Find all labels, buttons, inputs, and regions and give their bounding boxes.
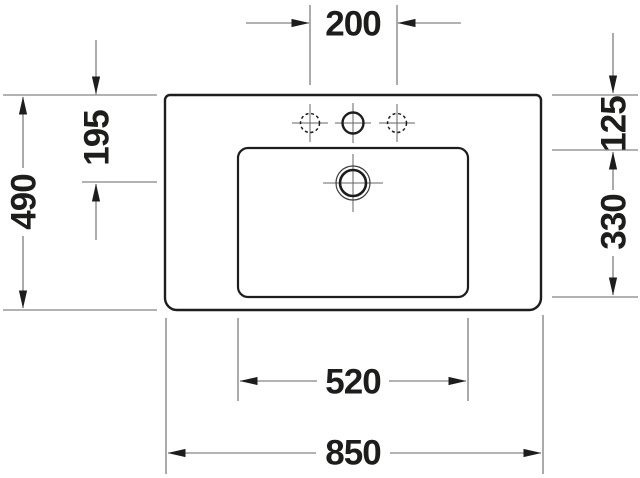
dimension-bottom-inner: 520 [238, 318, 468, 402]
dim-label-125: 125 [595, 96, 634, 152]
drawing-canvas: 200 490 195 125 330 [0, 0, 640, 478]
dimension-top-center: 200 [246, 5, 461, 85]
dimension-right-upper: 125 [552, 33, 638, 152]
dim-label-195: 195 [78, 110, 117, 166]
dim-label-490: 490 [5, 174, 44, 230]
dim-label-330: 330 [595, 194, 634, 250]
dimension-left-upper: 195 [78, 40, 157, 240]
faucet-holes [292, 103, 415, 143]
dimension-right-lower: 330 [552, 152, 638, 297]
dim-label-200: 200 [325, 5, 381, 44]
dim-label-850: 850 [325, 434, 381, 473]
washbasin-technical-drawing: 200 490 195 125 330 [0, 0, 640, 478]
dim-label-520: 520 [325, 363, 381, 402]
